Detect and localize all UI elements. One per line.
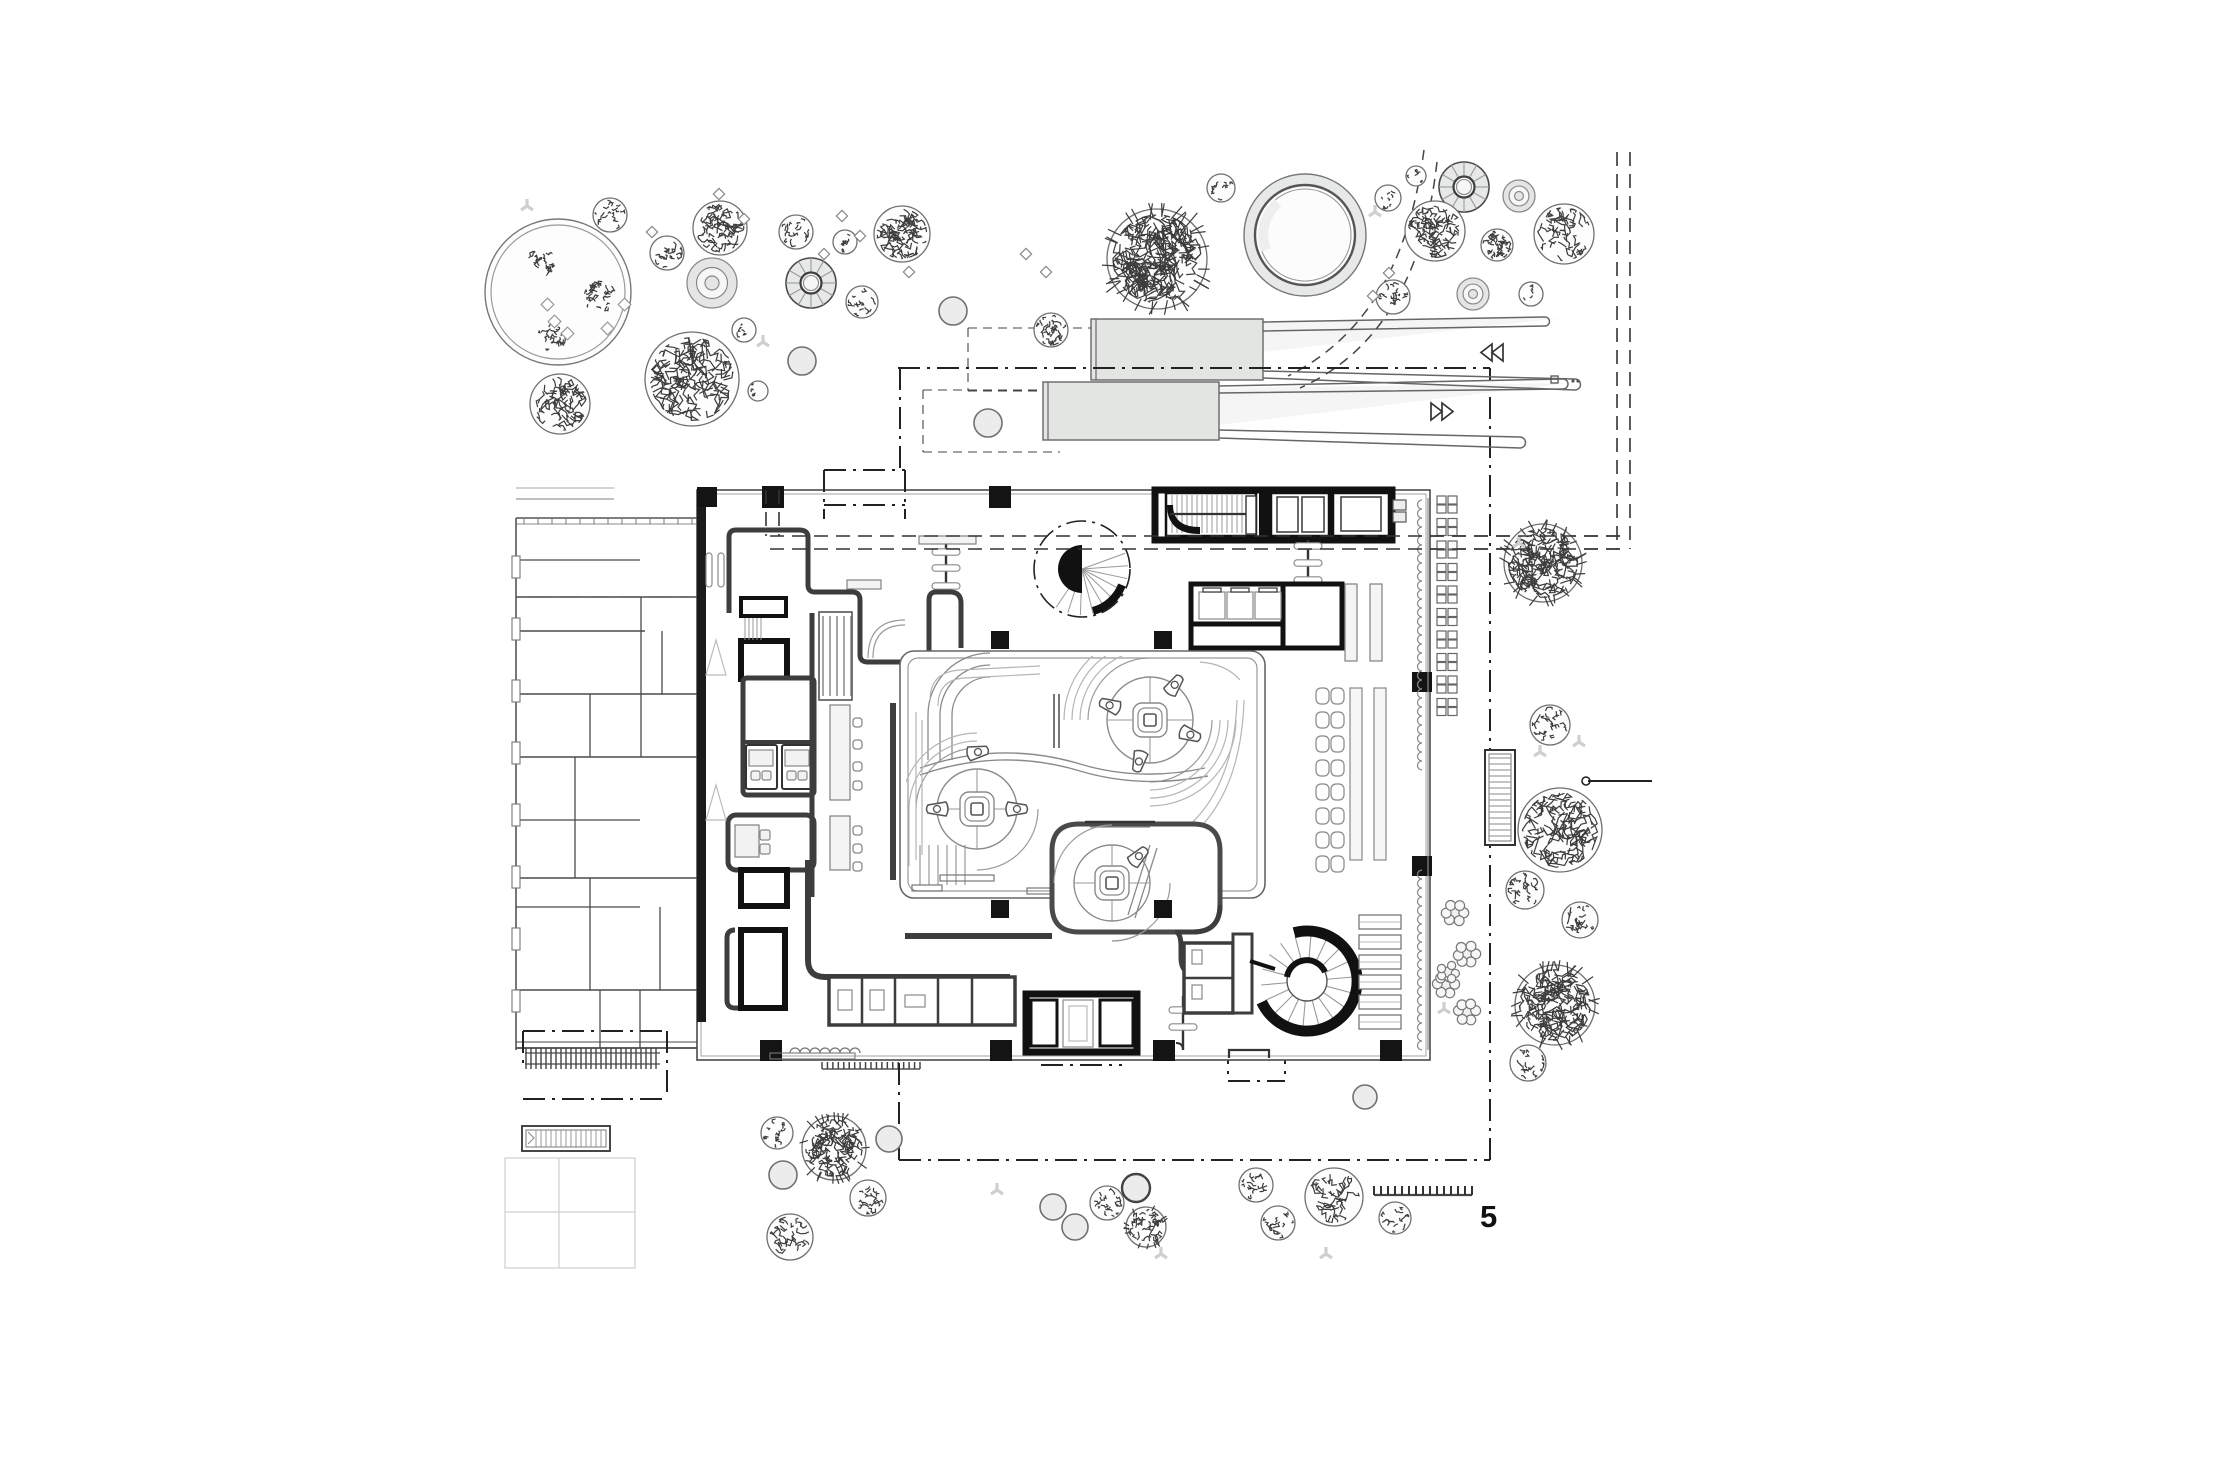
svg-text:5: 5 (1480, 1199, 1497, 1234)
